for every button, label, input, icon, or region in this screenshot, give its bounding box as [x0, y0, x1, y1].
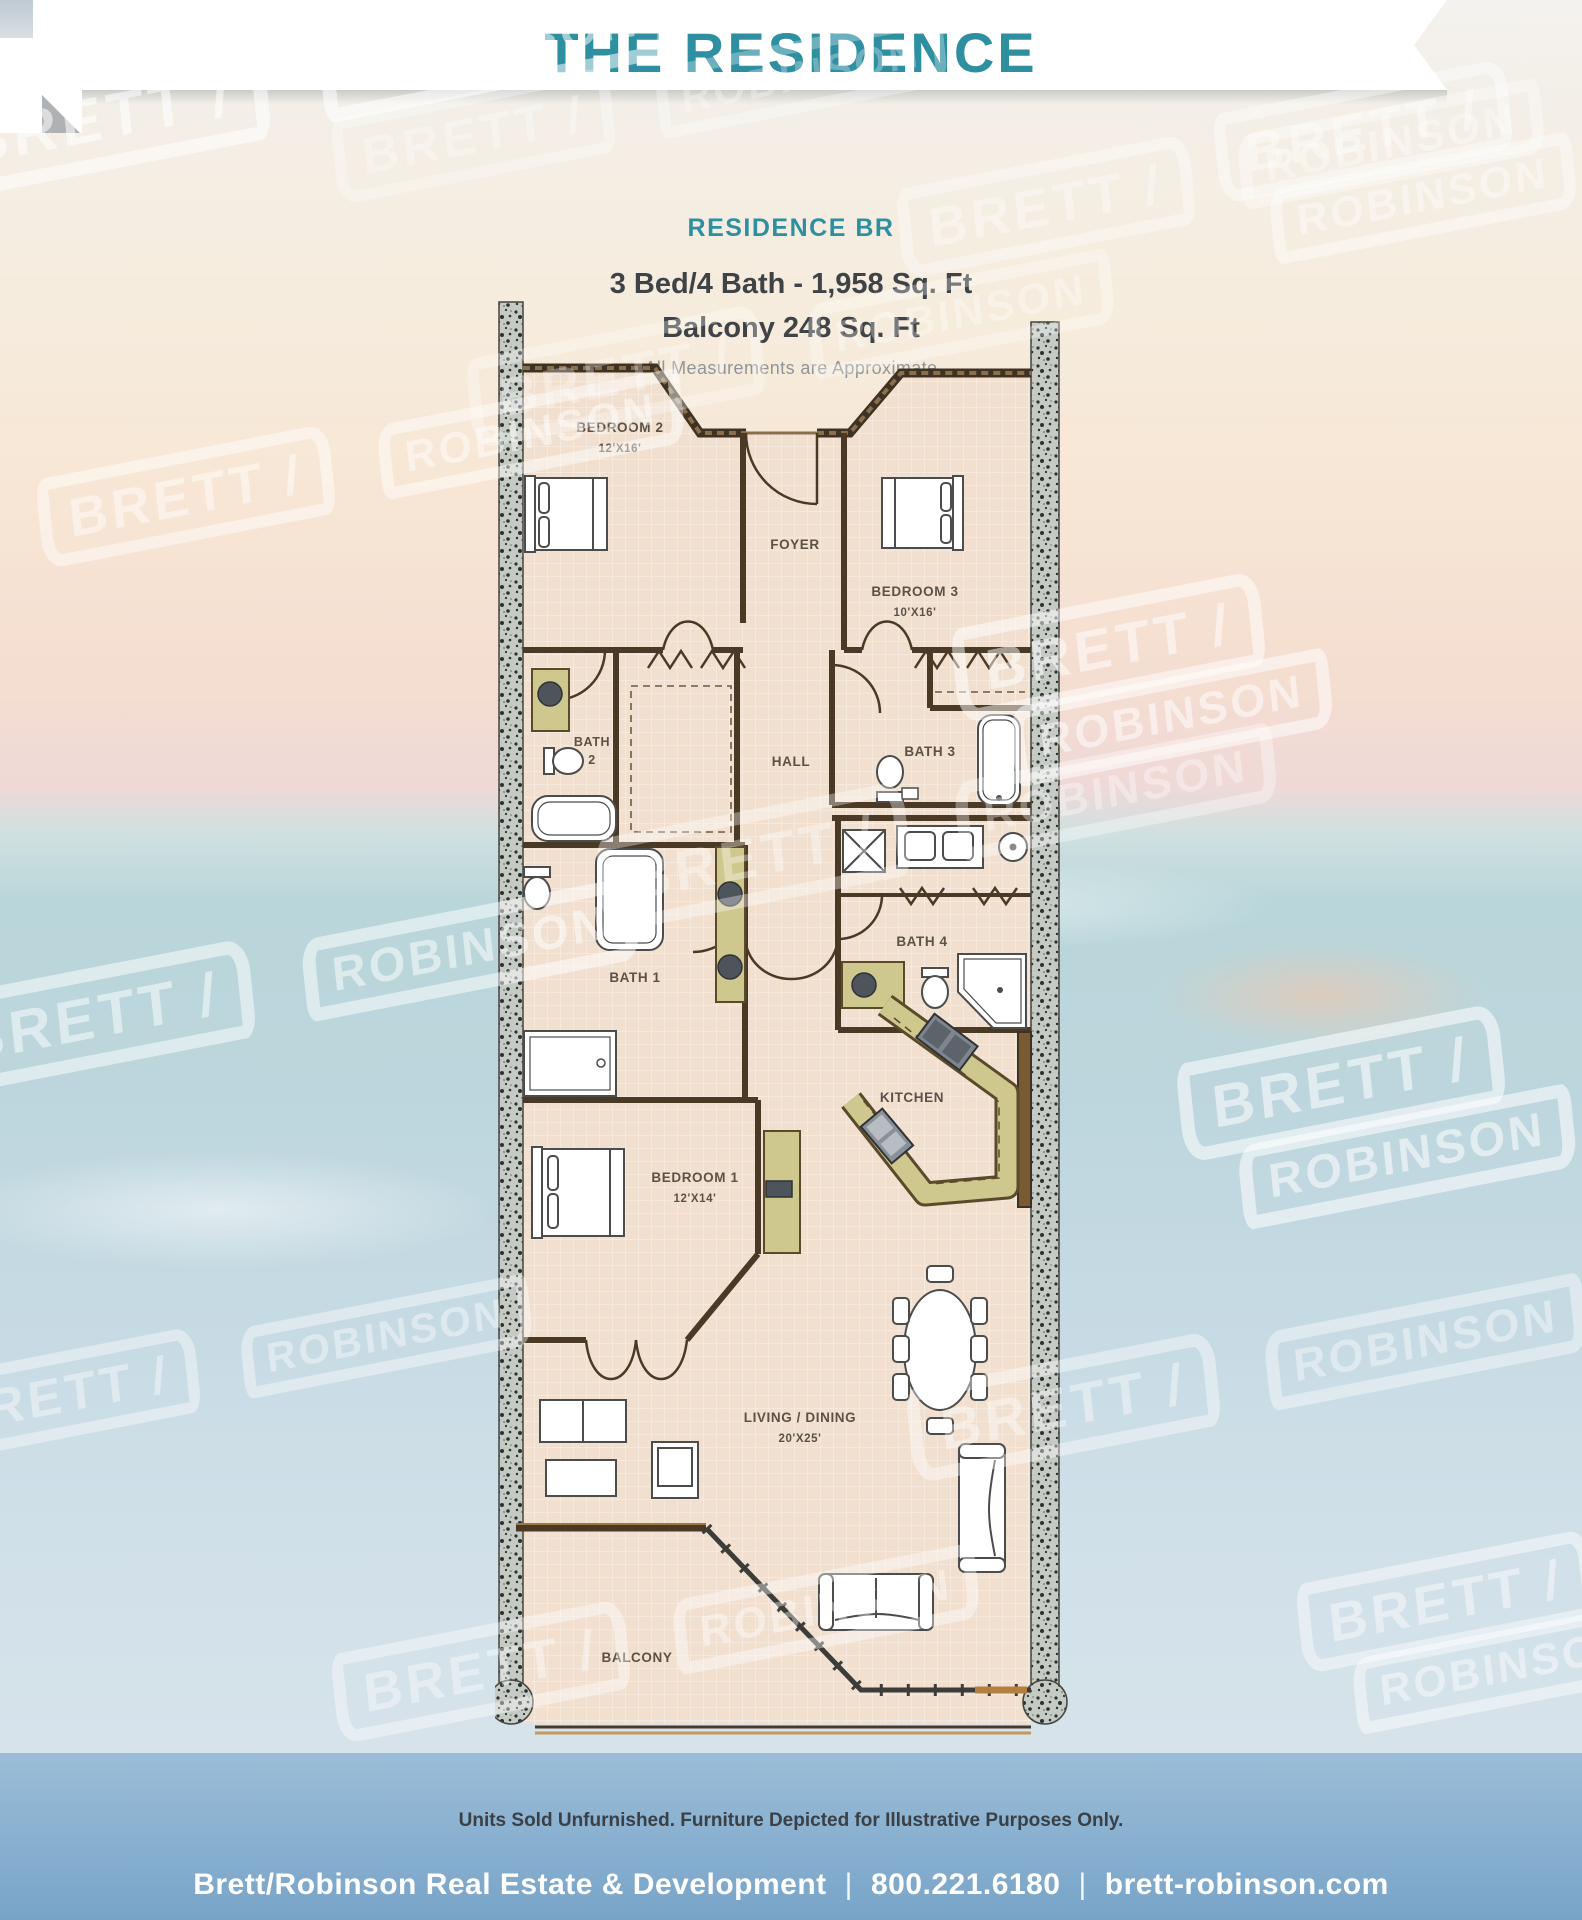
pantry-cabinet [764, 1131, 800, 1253]
footer-phone: 800.221.6180 [871, 1868, 1061, 1901]
balcony-outer-edge [535, 1727, 1031, 1733]
flyer-page: THE RESIDENCE RESIDENCE BR 3 Bed/4 Bath … [0, 0, 1582, 1920]
room-label-bath2-line2: 2 [588, 753, 596, 767]
room-label-bedroom1: BEDROOM 1 [651, 1170, 738, 1185]
room-dims-bedroom2: 12'X16' [599, 443, 642, 455]
page-title: THE RESIDENCE [0, 20, 1582, 85]
footer-company: Brett/Robinson Real Estate & Development [193, 1868, 826, 1901]
footer-separator: | [827, 1868, 871, 1901]
bed-bedroom2 [525, 476, 607, 552]
sunset-glow [1150, 940, 1490, 1050]
bed-bedroom1 [532, 1147, 624, 1238]
footer-separator: | [1060, 1868, 1104, 1901]
room-label-bedroom2: BEDROOM 2 [576, 420, 663, 435]
room-label-bath2-line1: BATH [574, 735, 610, 749]
floor-plan-svg: BEDROOM 2 12'X16' FOYER BEDROOM 3 10'X16… [495, 290, 1075, 1745]
plan-name: RESIDENCE BR [0, 214, 1582, 243]
disclaimer-text: Units Sold Unfurnished. Furniture Depict… [0, 1810, 1582, 1832]
room-label-hall: HALL [772, 754, 810, 769]
room-dims-bedroom1: 12'X14' [674, 1193, 717, 1205]
room-label-bath1: BATH 1 [609, 970, 660, 985]
room-dims-bedroom3: 10'X16' [894, 607, 937, 619]
footer-contact-line: Brett/Robinson Real Estate & Development… [0, 1868, 1582, 1902]
room-label-kitchen: KITCHEN [880, 1090, 944, 1105]
room-label-bath4: BATH 4 [896, 934, 947, 949]
room-label-bedroom3: BEDROOM 3 [871, 584, 958, 599]
room-label-foyer: FOYER [770, 537, 820, 552]
footer-website: brett-robinson.com [1105, 1868, 1389, 1901]
room-label-bath3: BATH 3 [904, 744, 955, 759]
ribbon-shadow [33, 90, 1447, 104]
floor-plan: BEDROOM 2 12'X16' FOYER BEDROOM 3 10'X16… [495, 290, 1075, 1745]
room-dims-living-dining: 20'X25' [779, 1433, 822, 1445]
bed-bedroom3 [882, 476, 963, 550]
room-label-living-dining: LIVING / DINING [744, 1410, 857, 1425]
room-label-balcony: BALCONY [602, 1650, 673, 1665]
